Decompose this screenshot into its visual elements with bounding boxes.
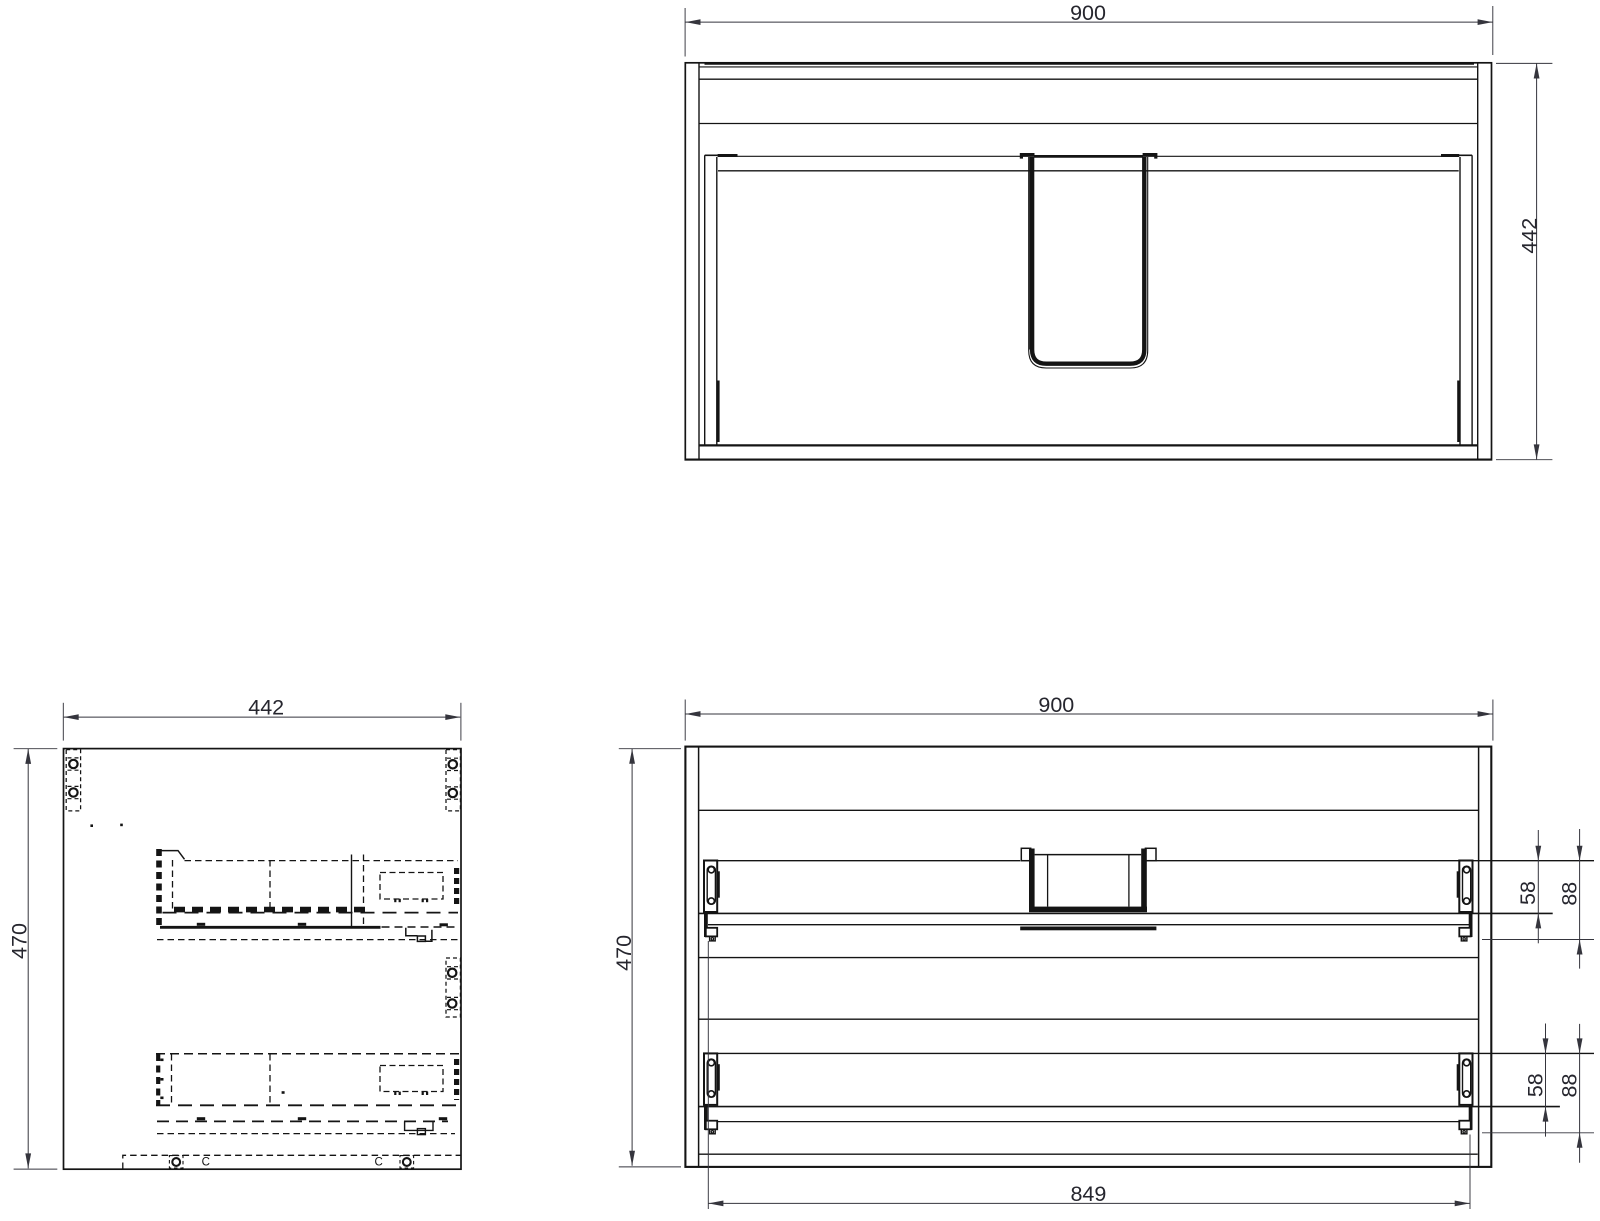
svg-text:442: 442 bbox=[248, 696, 284, 720]
svg-text:470: 470 bbox=[612, 935, 636, 971]
svg-text:900: 900 bbox=[1070, 1, 1106, 25]
svg-text:442: 442 bbox=[1518, 218, 1542, 254]
svg-text:C: C bbox=[375, 1156, 383, 1168]
svg-text:58: 58 bbox=[1516, 881, 1540, 905]
svg-text:849: 849 bbox=[1070, 1182, 1106, 1206]
svg-text:470: 470 bbox=[8, 923, 32, 959]
svg-text:58: 58 bbox=[1524, 1073, 1548, 1097]
svg-text:C: C bbox=[202, 1156, 210, 1168]
svg-text:88: 88 bbox=[1558, 1074, 1582, 1098]
svg-text:88: 88 bbox=[1558, 882, 1582, 906]
svg-text:900: 900 bbox=[1038, 693, 1074, 717]
